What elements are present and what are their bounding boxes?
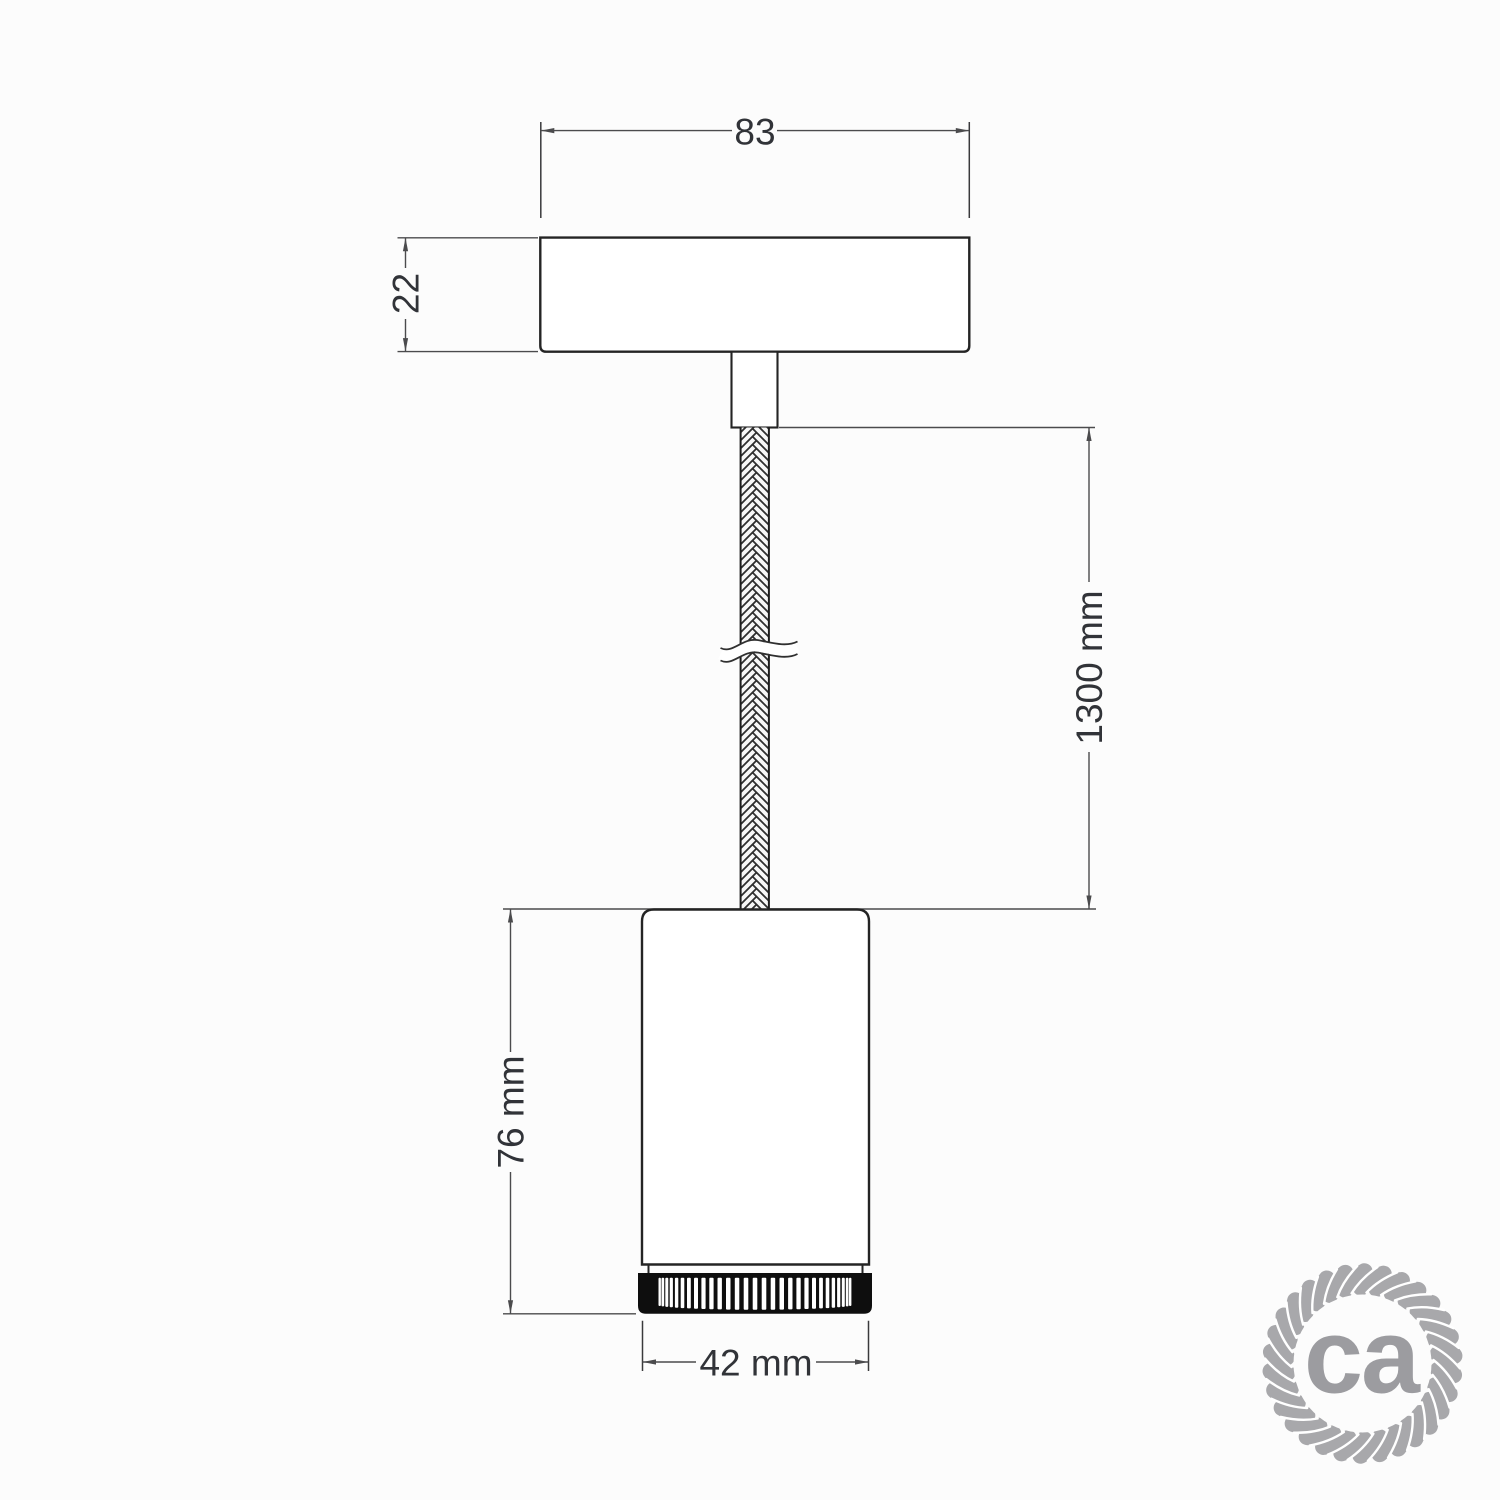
svg-text:22: 22 (386, 273, 427, 314)
svg-text:76 mm: 76 mm (491, 1055, 532, 1168)
svg-text:42 mm: 42 mm (699, 1343, 812, 1384)
svg-text:83: 83 (734, 111, 775, 152)
svg-text:1300 mm: 1300 mm (1069, 590, 1110, 744)
svg-text:ca: ca (1304, 1298, 1421, 1416)
